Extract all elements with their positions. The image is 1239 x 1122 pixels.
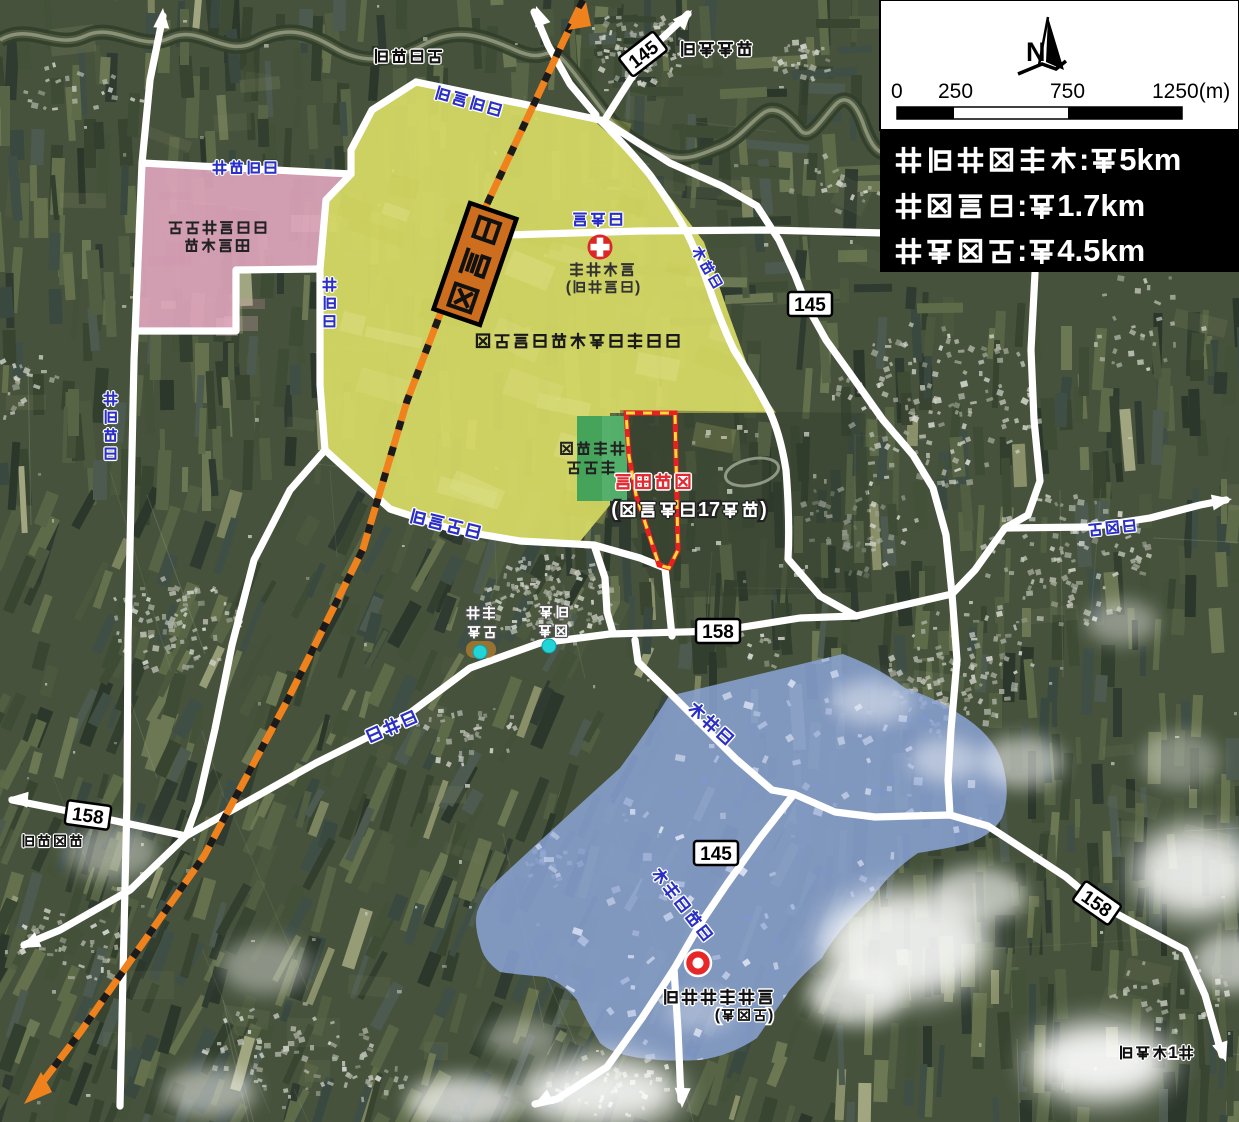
svg-text:(: (	[611, 499, 618, 521]
svg-text:1.7km: 1.7km	[1057, 188, 1145, 223]
svg-text:5km: 5km	[1119, 142, 1181, 177]
svg-text:145: 145	[700, 844, 732, 865]
svg-text:0: 0	[891, 80, 903, 103]
svg-text:): )	[768, 1007, 773, 1024]
svg-text:4.5km: 4.5km	[1057, 233, 1145, 268]
svg-text:N: N	[1026, 37, 1046, 67]
svg-text:): )	[635, 279, 640, 296]
svg-text:145: 145	[794, 295, 826, 316]
svg-text::: :	[1079, 142, 1089, 177]
svg-text:158: 158	[71, 804, 105, 829]
svg-text:158: 158	[702, 622, 734, 643]
svg-text:1: 1	[1168, 1043, 1177, 1062]
svg-text::: :	[1017, 233, 1027, 268]
svg-text:250: 250	[938, 80, 973, 103]
svg-text:1250(m): 1250(m)	[1152, 80, 1230, 103]
svg-text:750: 750	[1050, 80, 1085, 103]
svg-text::: :	[1017, 188, 1027, 223]
svg-text:(: (	[715, 1007, 721, 1024]
svg-text:17: 17	[698, 499, 720, 521]
svg-text:(: (	[566, 279, 572, 296]
svg-text:): )	[760, 499, 767, 521]
